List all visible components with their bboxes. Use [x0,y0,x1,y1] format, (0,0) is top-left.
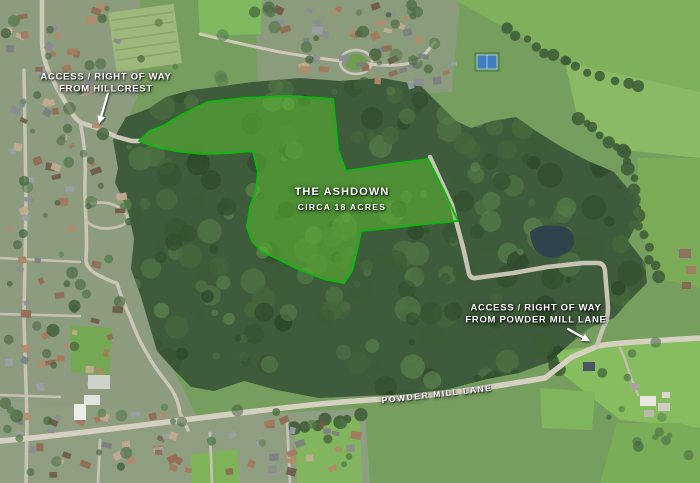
road-bottom-v1 [98,440,100,483]
powder-mill-access-line2: FROM POWDER MILL LANE [465,314,606,326]
hillcrest-access-line1: ACCESS / RIGHT OF WAY [40,72,171,84]
property-area: CIRCA 18 ACRES [295,202,390,212]
allotments [108,4,182,73]
tennis-court [474,52,500,72]
hillcrest-access-line2: FROM HILLCREST [40,83,171,95]
property-label: THE ASHDOWN CIRCA 18 ACRES [295,186,390,212]
property-name: THE ASHDOWN [295,186,390,198]
powder-mill-access-label: ACCESS / RIGHT OF WAY FROM POWDER MILL L… [465,303,606,326]
hillcrest-access-label: ACCESS / RIGHT OF WAY FROM HILLCREST [40,72,171,95]
aerial-site-plan: ACCESS / RIGHT OF WAY FROM HILLCREST THE… [0,0,700,483]
powder-mill-access-line1: ACCESS / RIGHT OF WAY [465,303,606,315]
